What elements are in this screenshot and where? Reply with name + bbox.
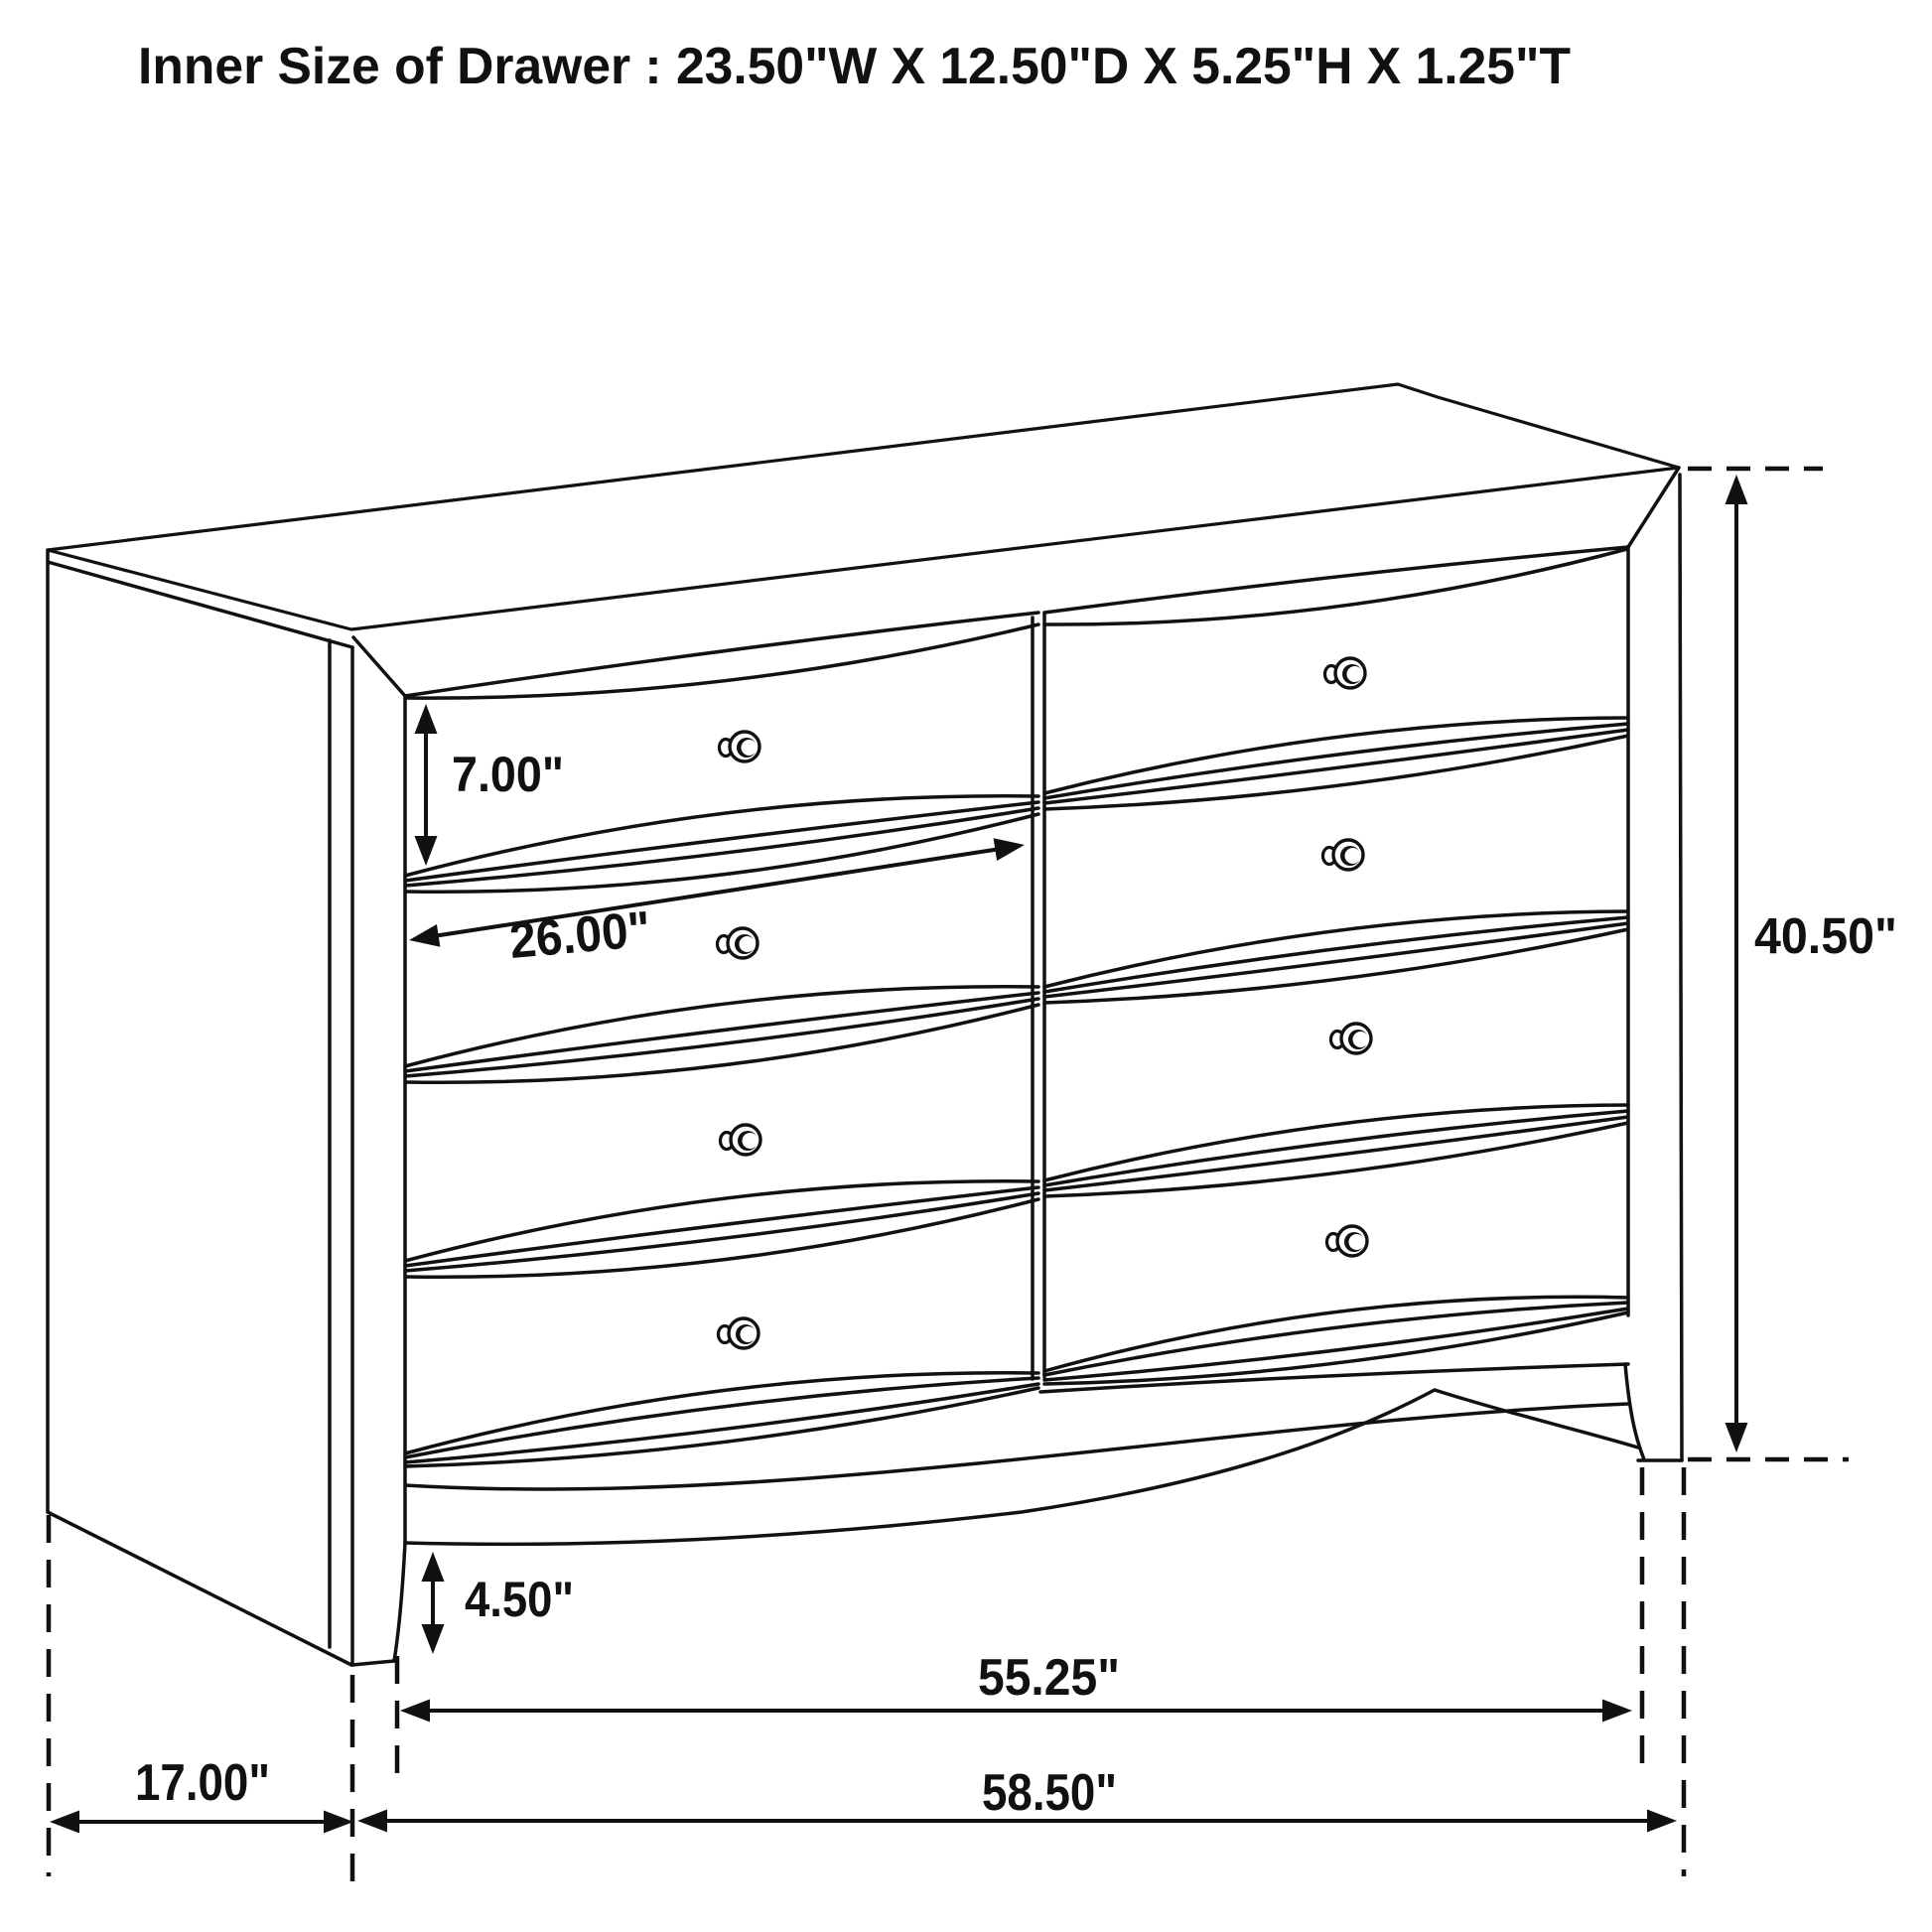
svg-text:55.25": 55.25" bbox=[978, 1649, 1120, 1707]
svg-text:40.50": 40.50" bbox=[1754, 907, 1897, 964]
svg-text:17.00": 17.00" bbox=[135, 1754, 270, 1812]
svg-text:7.00": 7.00" bbox=[452, 747, 564, 802]
svg-text:58.50": 58.50" bbox=[982, 1764, 1117, 1822]
svg-text:4.50": 4.50" bbox=[465, 1572, 574, 1627]
svg-text:Inner Size of Drawer : 23.50"W: Inner Size of Drawer : 23.50"W X 12.50"D… bbox=[138, 38, 1571, 95]
